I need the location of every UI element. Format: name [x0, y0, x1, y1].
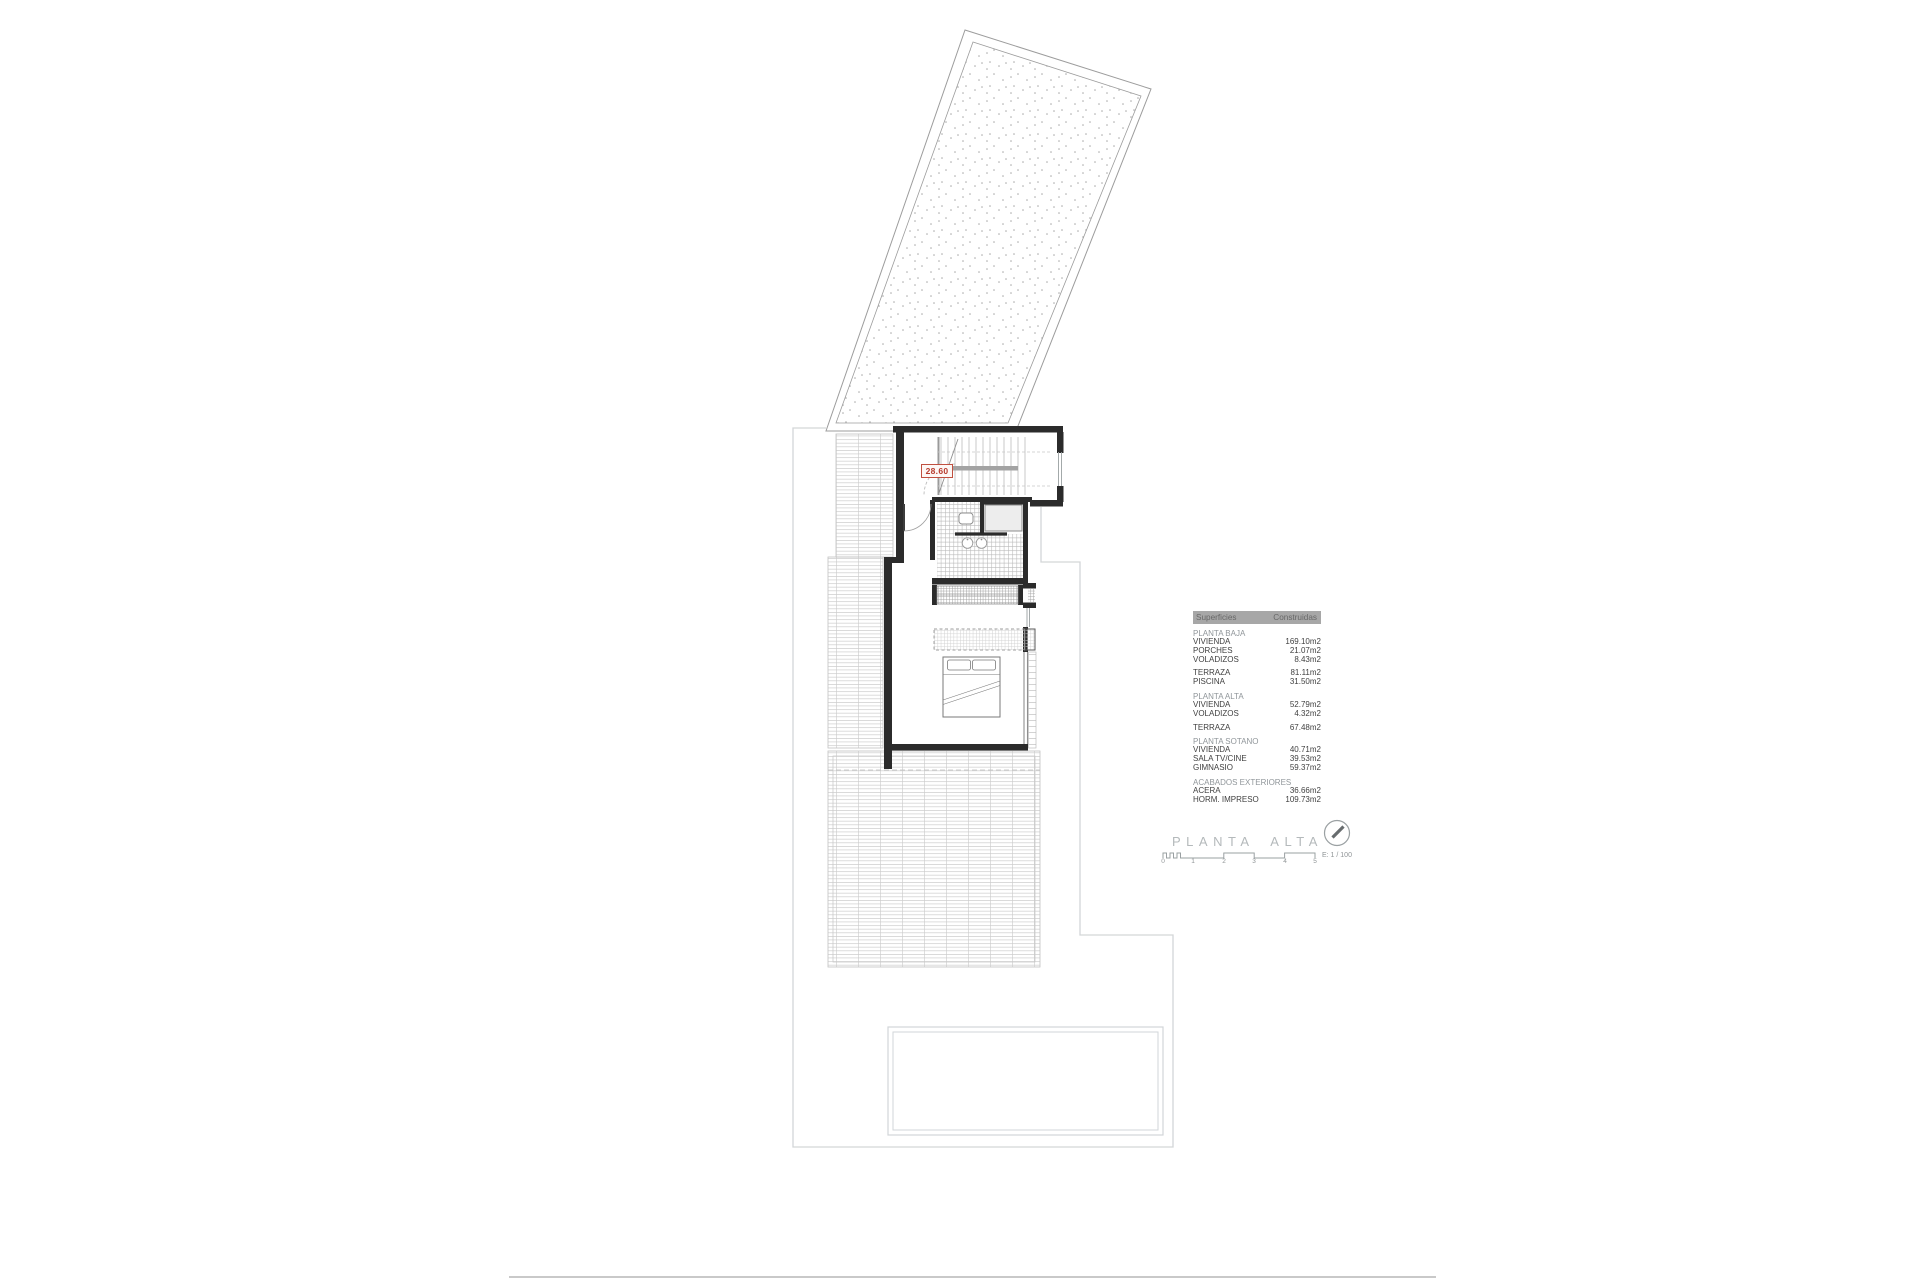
- table-row: HORM. IMPRESO109.73m2: [1193, 796, 1321, 805]
- shower: [985, 505, 1022, 531]
- table-row: GIMNASIO59.37m2: [1193, 764, 1321, 773]
- table-row: VOLADIZOS8.43m2: [1193, 656, 1321, 665]
- area-value: 67.48m2: [1290, 724, 1321, 733]
- area-label: HORM. IMPRESO: [1193, 796, 1259, 805]
- scale-tick: 1: [1188, 858, 1198, 865]
- areas-table: Superficies Construidas PLANTA BAJAVIVIE…: [1193, 611, 1321, 804]
- scale-tick: 0: [1158, 858, 1168, 865]
- scale-tick: 5: [1310, 858, 1320, 865]
- scale-tick: 2: [1219, 858, 1229, 865]
- floor-plan-drawing: [0, 0, 1920, 1280]
- area-value: 4.32m2: [1294, 710, 1321, 719]
- area-label: VOLADIZOS: [1193, 710, 1239, 719]
- area-label: GIMNASIO: [1193, 764, 1233, 773]
- scale-label: E: 1 / 100: [1322, 852, 1352, 859]
- bedroom-door: [904, 504, 931, 531]
- dimension-label: 28.60: [921, 464, 953, 478]
- table-section: TERRAZA81.11m2PISCINA31.50m2: [1193, 669, 1321, 687]
- pillow: [973, 660, 996, 670]
- bed: [943, 657, 1000, 717]
- area-value: 109.73m2: [1285, 796, 1321, 805]
- plot-area: [826, 30, 1151, 431]
- pool: [888, 1027, 1163, 1135]
- table-section: PLANTA ALTAVIVIENDA52.79m2VOLADIZOS4.32m…: [1193, 692, 1321, 719]
- table-row: VOLADIZOS4.32m2: [1193, 710, 1321, 719]
- handrail: [948, 466, 1018, 471]
- scale-tick: 3: [1249, 858, 1259, 865]
- table-section: TERRAZA67.48m2: [1193, 724, 1321, 733]
- table-section: PLANTA BAJAVIVIENDA169.10m2PORCHES21.07m…: [1193, 629, 1321, 664]
- table-section: ACABADOS EXTERIORESACERA36.66m2HORM. IMP…: [1193, 778, 1321, 805]
- area-value: 31.50m2: [1290, 678, 1321, 687]
- areas-table-body: PLANTA BAJAVIVIENDA169.10m2PORCHES21.07m…: [1193, 629, 1321, 804]
- sheet-edge-line: [509, 1276, 1436, 1278]
- areas-table-header-col2: Construidas: [1273, 613, 1317, 622]
- wardrobe-dashed: [934, 629, 1025, 650]
- area-label: VOLADIZOS: [1193, 656, 1239, 665]
- scale-tick: 4: [1280, 858, 1290, 865]
- scale-bar: [1158, 843, 1328, 863]
- area-label: PISCINA: [1193, 678, 1225, 687]
- table-row: PISCINA31.50m2: [1193, 678, 1321, 687]
- table-row: TERRAZA67.48m2: [1193, 724, 1321, 733]
- area-value: 59.37m2: [1290, 764, 1321, 773]
- areas-table-header: Superficies Construidas: [1193, 611, 1321, 624]
- title-block: PLANTA ALTA 0 1 2 3 4 5 E: 1 / 100: [1155, 810, 1385, 880]
- side-ledge: [1029, 652, 1037, 748]
- pillow: [948, 660, 971, 670]
- door-swing-arc: [904, 504, 931, 531]
- drawing-sheet: 28.60 Superficies Construidas PLANTA BAJ…: [0, 0, 1920, 1280]
- areas-table-header-col1: Superficies: [1196, 613, 1237, 622]
- table-section: PLANTA SOTANOVIVIENDA40.71m2SALA TV/CINE…: [1193, 737, 1321, 772]
- area-label: TERRAZA: [1193, 724, 1230, 733]
- area-value: 8.43m2: [1294, 656, 1321, 665]
- bathroom: [937, 502, 1023, 578]
- toilet: [959, 513, 973, 524]
